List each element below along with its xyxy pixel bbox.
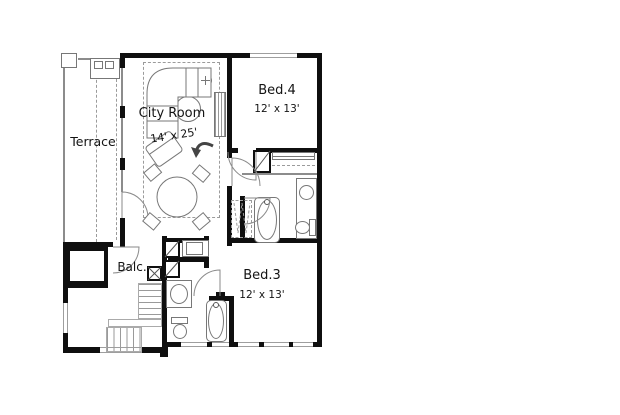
closet-door: [165, 241, 179, 257]
door-swing: [194, 270, 220, 296]
closet-hangers: [242, 203, 250, 233]
bed4-label: Bed.4: [247, 84, 307, 98]
dining-chair: [192, 165, 210, 182]
city-room-label: City Room: [127, 107, 217, 121]
dining-table: [157, 177, 197, 217]
dining-chair: [192, 213, 210, 230]
floor-plan: Terrace City Room 14' x 25' Bed.4 12' x …: [0, 0, 620, 415]
door-swing: [244, 198, 270, 224]
dining-chair: [143, 213, 161, 230]
closet-hangers: [234, 203, 242, 233]
bed3-dims: 12' x 13': [229, 290, 295, 302]
closet-door: [165, 261, 179, 277]
door-swing: [122, 192, 148, 218]
bed3-label: Bed.3: [232, 269, 292, 283]
balcony-label: Balc.: [112, 261, 152, 274]
plan-symbols-overlay: [0, 0, 620, 415]
terrace-label: Terrace: [64, 135, 122, 149]
bed4-dims: 12' x 13': [244, 104, 310, 116]
north-arrow: [191, 147, 201, 158]
